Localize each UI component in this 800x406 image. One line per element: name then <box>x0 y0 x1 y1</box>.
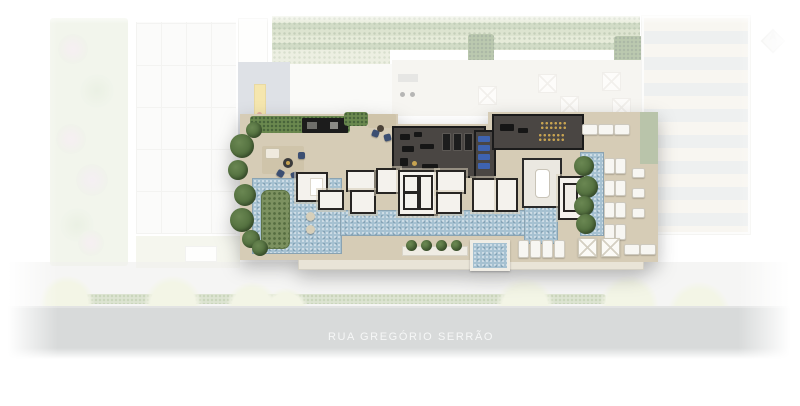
stepping-stone <box>306 212 315 221</box>
sun-lounger <box>604 202 615 218</box>
parasol <box>578 238 597 257</box>
sun-lounger <box>624 244 640 255</box>
restroom <box>436 170 466 194</box>
site-plan: RUA GREGÓRIO SERRÃO <box>0 0 800 406</box>
treadmill <box>442 133 451 151</box>
support-room <box>346 170 376 192</box>
weights-room <box>492 114 584 150</box>
sun-lounger <box>615 180 626 196</box>
fire-pit <box>283 158 293 168</box>
elevator-cab <box>403 175 419 193</box>
treadmill <box>453 133 462 151</box>
armchair <box>265 148 280 159</box>
support-room <box>376 168 400 194</box>
fire-pit-flame <box>286 161 290 165</box>
lap-pool-basin <box>524 202 558 244</box>
potted-tree <box>421 240 432 251</box>
stairwell <box>419 175 433 210</box>
locker-room <box>472 178 498 212</box>
changing-room <box>318 190 344 210</box>
barbecue-counter <box>302 118 348 133</box>
locker-room <box>496 178 518 212</box>
grill <box>307 122 317 129</box>
sun-lounger <box>614 124 630 135</box>
pond-tree <box>574 196 594 216</box>
exercise-mat <box>478 154 490 160</box>
sun-lounger <box>604 180 615 196</box>
gym-equipment <box>518 128 528 133</box>
exercise-mat <box>478 163 490 169</box>
pond-tree <box>576 176 598 198</box>
boundary-tree <box>246 122 262 138</box>
massage-room <box>522 158 562 208</box>
potted-tree <box>436 240 447 251</box>
round-table <box>377 125 384 132</box>
sun-lounger <box>598 124 614 135</box>
lounge-hedge-upper <box>344 112 368 126</box>
sun-lounger <box>554 240 565 258</box>
gym-equipment <box>402 146 414 152</box>
sun-lounger <box>604 158 615 174</box>
gym-equipment <box>500 124 514 131</box>
gym-equipment <box>400 158 408 166</box>
potted-tree <box>406 240 417 251</box>
sun-lounger <box>640 244 656 255</box>
spa-pool <box>470 240 510 271</box>
lounge-chair <box>298 152 305 159</box>
elevator-core <box>398 170 438 216</box>
boundary-tree <box>228 160 248 180</box>
sun-lounger <box>582 124 598 135</box>
boundary-tree <box>230 134 254 158</box>
parasol <box>601 238 620 257</box>
dumbbell-rack <box>540 121 566 129</box>
boundary-tree <box>230 208 254 232</box>
potted-tree <box>451 240 462 251</box>
pool-planted-island <box>261 190 290 249</box>
exercise-mat <box>478 145 490 151</box>
treadmill <box>464 133 473 151</box>
sun-lounger <box>542 240 553 258</box>
exercise-ball <box>412 161 417 166</box>
sink <box>330 122 338 129</box>
exercise-mat <box>478 136 490 142</box>
sun-lounger <box>615 202 626 218</box>
sun-lounger <box>632 188 645 198</box>
massage-table <box>535 169 550 198</box>
gym-bench <box>422 164 438 169</box>
pond-tree <box>576 214 596 234</box>
boundary-tree <box>252 240 268 256</box>
restroom <box>436 192 462 214</box>
gym-equipment <box>414 132 422 137</box>
sun-lounger <box>530 240 541 258</box>
sun-lounger <box>632 208 645 218</box>
sun-lounger <box>632 168 645 178</box>
boundary-tree <box>234 184 256 206</box>
sun-lounger <box>518 240 529 258</box>
pond-tree <box>574 156 594 176</box>
elevator-cab <box>403 192 419 210</box>
sun-lounger <box>615 158 626 174</box>
support-room <box>350 190 376 214</box>
gym-equipment <box>420 144 434 149</box>
dumbbell-rack <box>538 133 566 141</box>
stepping-stone <box>306 225 315 234</box>
gym-equipment <box>400 134 410 140</box>
deck-right-hedge-edge <box>640 112 658 164</box>
amenity-deck-building <box>0 0 800 406</box>
